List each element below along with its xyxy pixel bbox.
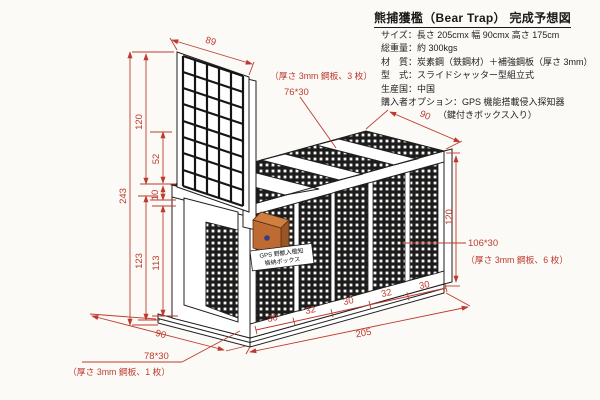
floor-plate-note: （厚さ 3mm 鋼板、1 枚）: [68, 366, 170, 377]
roof-plate-size: 76*30: [284, 87, 309, 98]
bear-trap-diagram: GPS 野獣入檻知 格納ボックス 89 243 120 123: [0, 0, 600, 400]
door-inner-mesh: [206, 222, 238, 318]
dim-label-side-height: 120: [444, 209, 455, 225]
dim-label-segment: 30: [418, 279, 431, 292]
dim-label-door-inner: 113: [151, 255, 162, 270]
side-plate-note: （厚さ 3mm 鋼板、6 枚）: [466, 254, 568, 265]
dim-label-total-length: 205: [355, 327, 373, 341]
gps-box-button: [264, 235, 270, 241]
side-plate-size: 106*30: [468, 238, 498, 249]
slide-shutter-grid: [177, 52, 249, 212]
dim-label-shutter-width: 89: [204, 35, 217, 48]
dim-label-door-outer: 123: [134, 253, 145, 269]
dim-upper-gap: 52: [150, 132, 172, 183]
dim-label-base-width: 90: [154, 328, 167, 341]
floor-plate-size: 78*30: [144, 351, 169, 362]
dim-label-lower-gap: 10: [150, 190, 161, 201]
dim-label-shutter-height: 120: [134, 114, 145, 130]
dim-label-top-width: 90: [418, 109, 432, 123]
side-mesh-panel: [410, 164, 438, 280]
dim-label-segment: 32: [380, 287, 393, 300]
dim-label-segment: 30: [342, 295, 355, 308]
dim-label-segment: 32: [304, 304, 317, 317]
side-mesh-panel: [335, 183, 368, 301]
scanned-drawing-page: 熊捕獲檻（Bear Trap） 完成予想図 サイズ：長さ 205cmx 幅 90…: [0, 0, 600, 400]
dim-label-upper-gap: 52: [151, 154, 162, 165]
side-mesh-panel: [373, 173, 405, 290]
dim-label-total-height: 243: [118, 188, 129, 204]
dim-label-segment: 30: [266, 312, 279, 325]
roof-plate-note: （厚さ 3mm 鋼板、3 枚）: [270, 70, 372, 81]
